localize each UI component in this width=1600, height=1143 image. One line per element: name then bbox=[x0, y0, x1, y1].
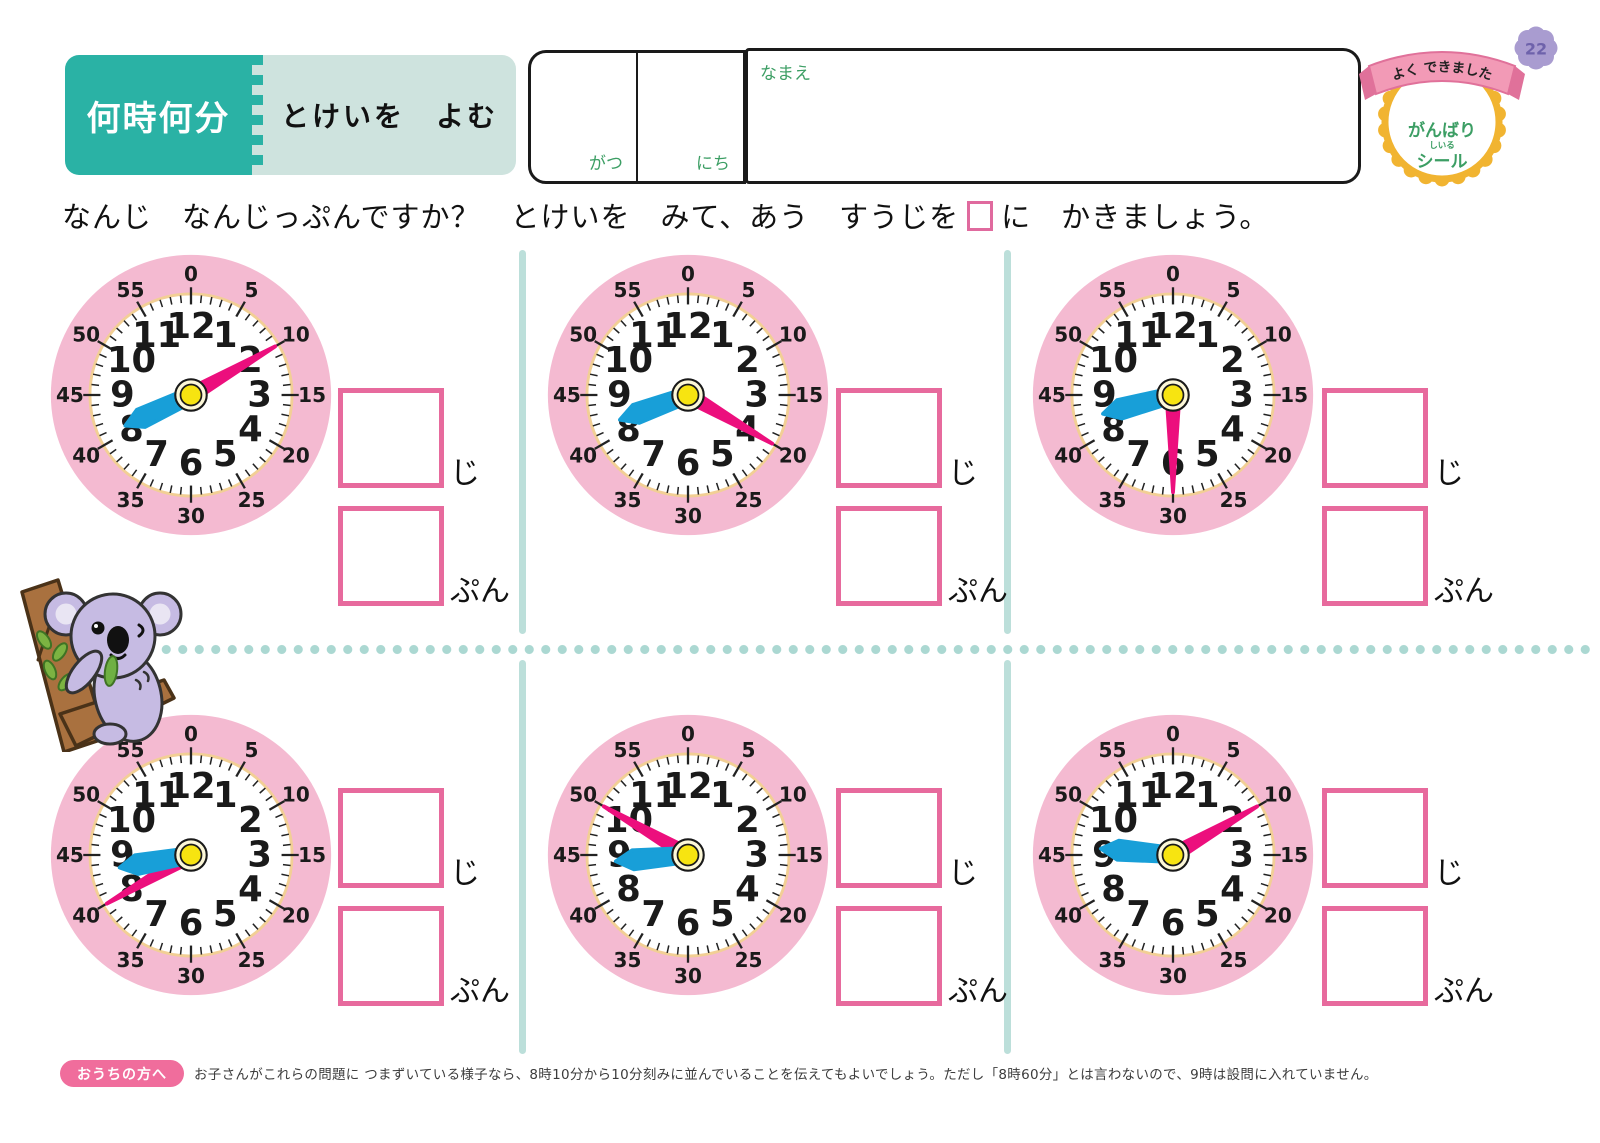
svg-text:20: 20 bbox=[282, 904, 310, 928]
svg-text:10: 10 bbox=[1264, 322, 1292, 346]
svg-text:7: 7 bbox=[641, 434, 666, 475]
answer-label-minute: ぷん bbox=[948, 966, 1008, 1010]
reward-badge-drawing: よく できましたがんばりしいるシール bbox=[1356, 30, 1528, 190]
svg-text:5: 5 bbox=[245, 278, 259, 302]
svg-text:1: 1 bbox=[1195, 775, 1220, 816]
svg-text:55: 55 bbox=[614, 738, 642, 762]
name-label: なまえ bbox=[760, 59, 811, 84]
unit-title-box: 何時何分 bbox=[65, 55, 252, 175]
column-divider bbox=[519, 250, 526, 634]
svg-text:50: 50 bbox=[569, 782, 597, 806]
answer-label-minute: ぷん bbox=[1434, 966, 1494, 1010]
worksheet-page: 何時何分 とけいを よむ がつ にち なまえ よく できましたがんばりしいるシー… bbox=[0, 0, 1600, 1143]
svg-text:45: 45 bbox=[56, 383, 84, 407]
answer-box-hour-clock-4[interactable] bbox=[338, 788, 444, 888]
svg-text:0: 0 bbox=[681, 262, 695, 286]
answer-label-minute: ぷん bbox=[1434, 566, 1494, 610]
answer-label-hour: じ bbox=[948, 448, 978, 492]
svg-text:1: 1 bbox=[1195, 315, 1220, 356]
svg-text:15: 15 bbox=[298, 383, 326, 407]
svg-text:55: 55 bbox=[1099, 738, 1127, 762]
name-field[interactable]: なまえ bbox=[745, 48, 1361, 184]
answer-box-hour-clock-3[interactable] bbox=[1322, 388, 1428, 488]
svg-text:5: 5 bbox=[1195, 894, 1220, 935]
svg-text:しいる: しいる bbox=[1429, 141, 1455, 151]
svg-text:20: 20 bbox=[1264, 444, 1292, 468]
answer-label-minute: ぷん bbox=[450, 966, 510, 1010]
svg-text:45: 45 bbox=[553, 843, 581, 867]
svg-text:45: 45 bbox=[1038, 383, 1066, 407]
svg-text:6: 6 bbox=[179, 903, 204, 944]
svg-text:4: 4 bbox=[1220, 869, 1245, 910]
answer-box-hour-clock-1[interactable] bbox=[338, 388, 444, 488]
answer-box-minute-clock-5[interactable] bbox=[836, 906, 942, 1006]
svg-text:45: 45 bbox=[56, 843, 84, 867]
svg-text:11: 11 bbox=[132, 775, 181, 816]
svg-text:11: 11 bbox=[1114, 315, 1163, 356]
svg-text:25: 25 bbox=[735, 488, 763, 512]
svg-text:5: 5 bbox=[1195, 434, 1220, 475]
svg-text:7: 7 bbox=[144, 894, 169, 935]
svg-text:15: 15 bbox=[795, 843, 823, 867]
svg-text:30: 30 bbox=[1159, 504, 1187, 528]
answer-label-hour: じ bbox=[1434, 848, 1464, 892]
svg-text:6: 6 bbox=[676, 443, 701, 484]
svg-text:10: 10 bbox=[779, 782, 807, 806]
svg-text:50: 50 bbox=[72, 322, 100, 346]
svg-text:45: 45 bbox=[553, 383, 581, 407]
clock-6: 0510152025303540455055121234567891011 bbox=[1030, 712, 1316, 998]
svg-text:5: 5 bbox=[213, 434, 238, 475]
koala-drawing bbox=[8, 540, 208, 752]
month-label: がつ bbox=[589, 149, 623, 174]
date-box: がつ にち bbox=[528, 50, 746, 184]
svg-text:50: 50 bbox=[1054, 782, 1082, 806]
instruction-text-after: に かきましょう。 bbox=[1001, 200, 1269, 234]
svg-text:30: 30 bbox=[177, 504, 205, 528]
svg-text:35: 35 bbox=[117, 488, 145, 512]
unit-title: 何時何分 bbox=[87, 91, 231, 140]
svg-text:35: 35 bbox=[117, 948, 145, 972]
svg-text:15: 15 bbox=[795, 383, 823, 407]
koala-illustration bbox=[8, 540, 208, 762]
clock-1: 0510152025303540455055121234567891011 bbox=[48, 252, 334, 538]
svg-text:5: 5 bbox=[245, 738, 259, 762]
answer-box-hour-clock-6[interactable] bbox=[1322, 788, 1428, 888]
svg-text:40: 40 bbox=[1054, 444, 1082, 468]
svg-text:シール: シール bbox=[1417, 152, 1468, 172]
date-month-field[interactable]: がつ bbox=[531, 53, 636, 181]
svg-text:45: 45 bbox=[1038, 843, 1066, 867]
svg-text:1: 1 bbox=[213, 775, 238, 816]
svg-text:25: 25 bbox=[1220, 488, 1248, 512]
answer-label-hour: じ bbox=[450, 848, 480, 892]
svg-text:0: 0 bbox=[184, 262, 198, 286]
lesson-title-box: とけいを よむ bbox=[263, 55, 516, 175]
answer-label-hour: じ bbox=[1434, 448, 1464, 492]
svg-text:1: 1 bbox=[710, 775, 735, 816]
svg-text:35: 35 bbox=[1099, 488, 1127, 512]
answer-label-hour: じ bbox=[948, 848, 978, 892]
svg-text:4: 4 bbox=[238, 869, 263, 910]
svg-text:25: 25 bbox=[238, 948, 266, 972]
svg-text:7: 7 bbox=[1126, 894, 1151, 935]
svg-text:40: 40 bbox=[569, 904, 597, 928]
svg-text:10: 10 bbox=[779, 322, 807, 346]
svg-text:30: 30 bbox=[1159, 964, 1187, 988]
svg-text:40: 40 bbox=[72, 904, 100, 928]
svg-text:20: 20 bbox=[1264, 904, 1292, 928]
parents-note-text: お子さんがこれらの問題に つまずいている様子なら、8時10分から10分刻みに並ん… bbox=[194, 1063, 1584, 1083]
svg-text:7: 7 bbox=[1126, 434, 1151, 475]
answer-label-minute: ぷん bbox=[450, 566, 510, 610]
svg-text:25: 25 bbox=[735, 948, 763, 972]
svg-text:20: 20 bbox=[779, 904, 807, 928]
svg-text:6: 6 bbox=[676, 903, 701, 944]
svg-text:35: 35 bbox=[614, 948, 642, 972]
clock-3: 0510152025303540455055121234567891011 bbox=[1030, 252, 1316, 538]
svg-text:40: 40 bbox=[1054, 904, 1082, 928]
svg-text:55: 55 bbox=[1099, 278, 1127, 302]
svg-text:5: 5 bbox=[710, 434, 735, 475]
svg-text:40: 40 bbox=[72, 444, 100, 468]
svg-text:4: 4 bbox=[238, 409, 263, 450]
svg-text:30: 30 bbox=[674, 504, 702, 528]
svg-text:5: 5 bbox=[1227, 278, 1241, 302]
svg-text:25: 25 bbox=[238, 488, 266, 512]
svg-text:25: 25 bbox=[1220, 948, 1248, 972]
svg-text:がんばり: がんばり bbox=[1408, 120, 1476, 141]
answer-square-icon bbox=[967, 201, 993, 231]
svg-text:40: 40 bbox=[569, 444, 597, 468]
svg-text:6: 6 bbox=[179, 443, 204, 484]
day-label: にち bbox=[696, 149, 730, 174]
svg-text:11: 11 bbox=[132, 315, 181, 356]
clock-5: 0510152025303540455055121234567891011 bbox=[545, 712, 831, 998]
svg-text:10: 10 bbox=[282, 322, 310, 346]
svg-text:4: 4 bbox=[735, 869, 760, 910]
svg-text:5: 5 bbox=[742, 278, 756, 302]
svg-text:7: 7 bbox=[144, 434, 169, 475]
page-number-badge: 22 bbox=[1514, 26, 1558, 70]
answer-box-minute-clock-3[interactable] bbox=[1322, 506, 1428, 606]
svg-text:11: 11 bbox=[629, 775, 678, 816]
svg-text:30: 30 bbox=[674, 964, 702, 988]
title-seam-decoration bbox=[252, 55, 263, 175]
answer-box-minute-clock-6[interactable] bbox=[1322, 906, 1428, 1006]
svg-text:35: 35 bbox=[614, 488, 642, 512]
parents-note-badge: おうちの方へ bbox=[60, 1060, 184, 1087]
svg-text:35: 35 bbox=[1099, 948, 1127, 972]
svg-text:10: 10 bbox=[282, 782, 310, 806]
svg-text:15: 15 bbox=[1280, 383, 1308, 407]
svg-text:50: 50 bbox=[1054, 322, 1082, 346]
svg-text:1: 1 bbox=[710, 315, 735, 356]
svg-text:55: 55 bbox=[117, 278, 145, 302]
column-divider bbox=[519, 660, 526, 1054]
svg-text:1: 1 bbox=[213, 315, 238, 356]
lesson-title: とけいを よむ bbox=[281, 95, 498, 135]
answer-box-hour-clock-5[interactable] bbox=[836, 788, 942, 888]
answer-box-minute-clock-1[interactable] bbox=[338, 506, 444, 606]
svg-text:0: 0 bbox=[1166, 262, 1180, 286]
svg-text:50: 50 bbox=[569, 322, 597, 346]
svg-text:5: 5 bbox=[742, 738, 756, 762]
page-number-drawing: 22 bbox=[1514, 26, 1558, 70]
instruction-text-before: なんじ なんじっぷんですか？ とけいを みて、あう すうじを bbox=[62, 200, 959, 234]
svg-text:0: 0 bbox=[1166, 722, 1180, 746]
svg-text:11: 11 bbox=[1114, 775, 1163, 816]
svg-text:15: 15 bbox=[1280, 843, 1308, 867]
svg-text:5: 5 bbox=[710, 894, 735, 935]
answer-box-hour-clock-2[interactable] bbox=[836, 388, 942, 488]
svg-text:20: 20 bbox=[282, 444, 310, 468]
svg-text:0: 0 bbox=[681, 722, 695, 746]
svg-text:6: 6 bbox=[1161, 903, 1186, 944]
svg-text:50: 50 bbox=[72, 782, 100, 806]
answer-box-minute-clock-4[interactable] bbox=[338, 906, 444, 1006]
clock-2: 0510152025303540455055121234567891011 bbox=[545, 252, 831, 538]
instruction-line: なんじ なんじっぷんですか？ とけいを みて、あう すうじをに かきましょう。 bbox=[62, 194, 1522, 236]
answer-label-minute: ぷん bbox=[948, 566, 1008, 610]
svg-text:5: 5 bbox=[1227, 738, 1241, 762]
svg-text:20: 20 bbox=[779, 444, 807, 468]
answer-box-minute-clock-2[interactable] bbox=[836, 506, 942, 606]
svg-text:30: 30 bbox=[177, 964, 205, 988]
date-day-field[interactable]: にち bbox=[636, 53, 743, 181]
svg-text:22: 22 bbox=[1525, 40, 1547, 59]
reward-badge: よく できましたがんばりしいるシール bbox=[1356, 30, 1528, 190]
svg-text:5: 5 bbox=[213, 894, 238, 935]
svg-text:55: 55 bbox=[614, 278, 642, 302]
svg-text:11: 11 bbox=[629, 315, 678, 356]
answer-label-hour: じ bbox=[450, 448, 480, 492]
svg-text:7: 7 bbox=[641, 894, 666, 935]
svg-text:4: 4 bbox=[1220, 409, 1245, 450]
row-divider-dotted bbox=[125, 644, 1595, 655]
svg-text:15: 15 bbox=[298, 843, 326, 867]
svg-text:10: 10 bbox=[1264, 782, 1292, 806]
